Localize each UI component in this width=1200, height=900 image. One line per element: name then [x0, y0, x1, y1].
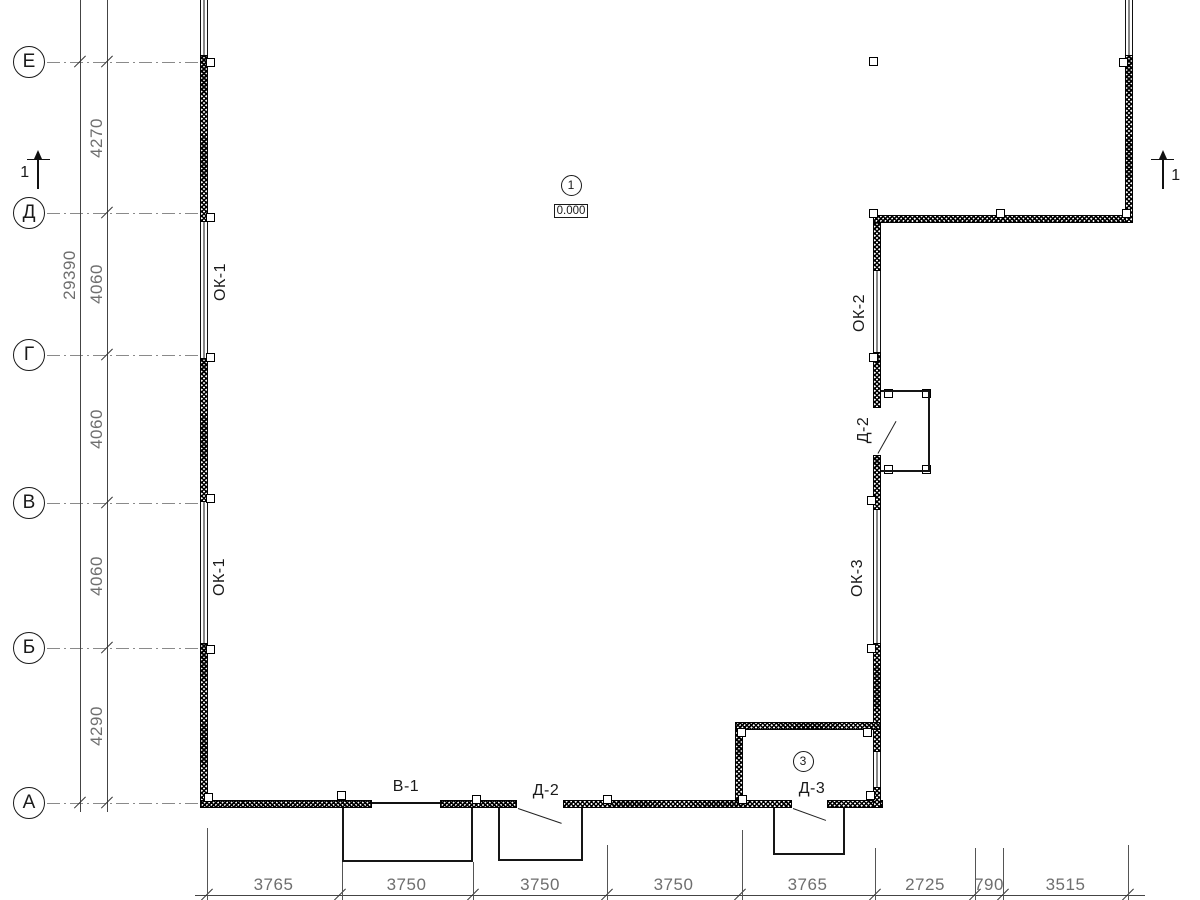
wall-segment: [873, 215, 881, 271]
column-marker: [1122, 209, 1131, 218]
dim-text-h6: 790: [974, 875, 1004, 895]
axis-bubble-Е: Е: [13, 46, 45, 78]
column-marker: [863, 728, 872, 737]
level-elevation-box: 0.000: [554, 204, 588, 218]
dim-text-h4: 3765: [788, 875, 828, 895]
axis-bubble-В: В: [13, 487, 45, 519]
column-marker: [737, 728, 746, 737]
door-label-d2-right: Д-2: [855, 417, 873, 444]
wall-segment: [1125, 55, 1133, 223]
section-arrow-up-icon: [1159, 150, 1167, 159]
column-marker: [603, 795, 612, 804]
column-marker: [869, 209, 878, 218]
gate-opening-line: [372, 802, 440, 804]
section-label: 1: [1171, 167, 1180, 185]
segment-dim-line: [107, 0, 108, 812]
door-label-d3: Д-3: [799, 780, 826, 798]
dim-text-v4: 4290: [87, 706, 107, 746]
window-ok1-lower: [200, 502, 208, 643]
axis-bubble-Г: Г: [13, 339, 45, 371]
entrance-porch: [342, 808, 473, 862]
room-mark-bubble: 3: [793, 751, 814, 772]
dim-text-v3: 4060: [87, 556, 107, 596]
window-label-ok2: ОК-2: [851, 294, 869, 332]
extension-line: [742, 830, 743, 900]
column-marker: [1119, 58, 1128, 67]
wall-segment: [200, 358, 208, 502]
wall-segment: [563, 800, 792, 808]
column-marker: [472, 795, 481, 804]
column-marker: [867, 496, 876, 505]
dim-text-h5: 2725: [905, 875, 945, 895]
window-top-right: [1125, 0, 1133, 55]
door-vestibule-outline: [881, 390, 930, 472]
floor-plan-canvas: ЕДГВБА2939042704060406040604290376537503…: [0, 0, 1200, 900]
wall-segment: [735, 730, 743, 800]
column-marker: [738, 795, 747, 804]
axis-line-Г: [47, 355, 202, 356]
door-label-v1: В-1: [393, 778, 419, 796]
dim-text-h3: 3750: [654, 875, 694, 895]
column-marker: [206, 353, 215, 362]
column-marker: [869, 57, 878, 66]
column-marker: [996, 209, 1005, 218]
axis-line-Е: [47, 62, 202, 63]
window-vestibule: [873, 752, 881, 787]
wall-segment: [200, 55, 208, 222]
dim-text-h1: 3750: [387, 875, 427, 895]
dim-text-v2: 4060: [87, 409, 107, 449]
wall-segment: [735, 722, 881, 730]
axis-bubble-Б: Б: [13, 632, 45, 664]
column-marker: [206, 645, 215, 654]
axis-line-Д: [47, 213, 202, 214]
wall-segment: [873, 643, 881, 752]
dim-text-h2: 3750: [520, 875, 560, 895]
extension-line: [342, 862, 343, 900]
extension-line: [975, 848, 976, 900]
axis-bubble-А: А: [13, 787, 45, 819]
column-marker: [866, 791, 875, 800]
window-ok3: [873, 510, 881, 643]
window-ok1-upper: [200, 222, 208, 358]
window-label-ok1-upper: ОК-1: [212, 263, 230, 301]
wall-segment: [200, 643, 208, 808]
column-marker: [206, 58, 215, 67]
extension-line: [875, 848, 876, 900]
column-marker: [206, 494, 215, 503]
extension-line: [607, 845, 608, 900]
extension-line: [207, 828, 208, 900]
column-marker: [337, 791, 346, 800]
axis-line-Б: [47, 648, 202, 649]
total-dim-line: [80, 0, 81, 812]
extension-line: [1003, 848, 1004, 900]
axis-line-А: [47, 803, 202, 804]
wall-segment: [200, 800, 372, 808]
column-marker: [867, 644, 876, 653]
axis-line-В: [47, 503, 202, 504]
dim-text-h7: 3515: [1046, 875, 1086, 895]
level-mark-bubble: 1: [561, 175, 582, 196]
column-marker: [206, 213, 215, 222]
window-label-ok3: ОК-3: [849, 559, 867, 597]
dim-text-v0: 4270: [87, 118, 107, 158]
dim-text-h0: 3765: [254, 875, 294, 895]
dim-text-total: 29390: [60, 250, 80, 300]
dim-text-v1: 4060: [87, 264, 107, 304]
section-arrow-up-icon: [34, 150, 42, 159]
extension-line: [1128, 845, 1129, 900]
axis-bubble-Д: Д: [13, 197, 45, 229]
extension-line: [473, 862, 474, 900]
column-marker: [204, 793, 213, 802]
window-ok2: [873, 271, 881, 352]
door-label-d2-bottom: Д-2: [533, 782, 560, 800]
column-marker: [869, 353, 878, 362]
window-top-left: [200, 0, 208, 55]
window-label-ok1-lower: ОК-1: [211, 558, 229, 596]
section-label: 1: [20, 164, 29, 182]
